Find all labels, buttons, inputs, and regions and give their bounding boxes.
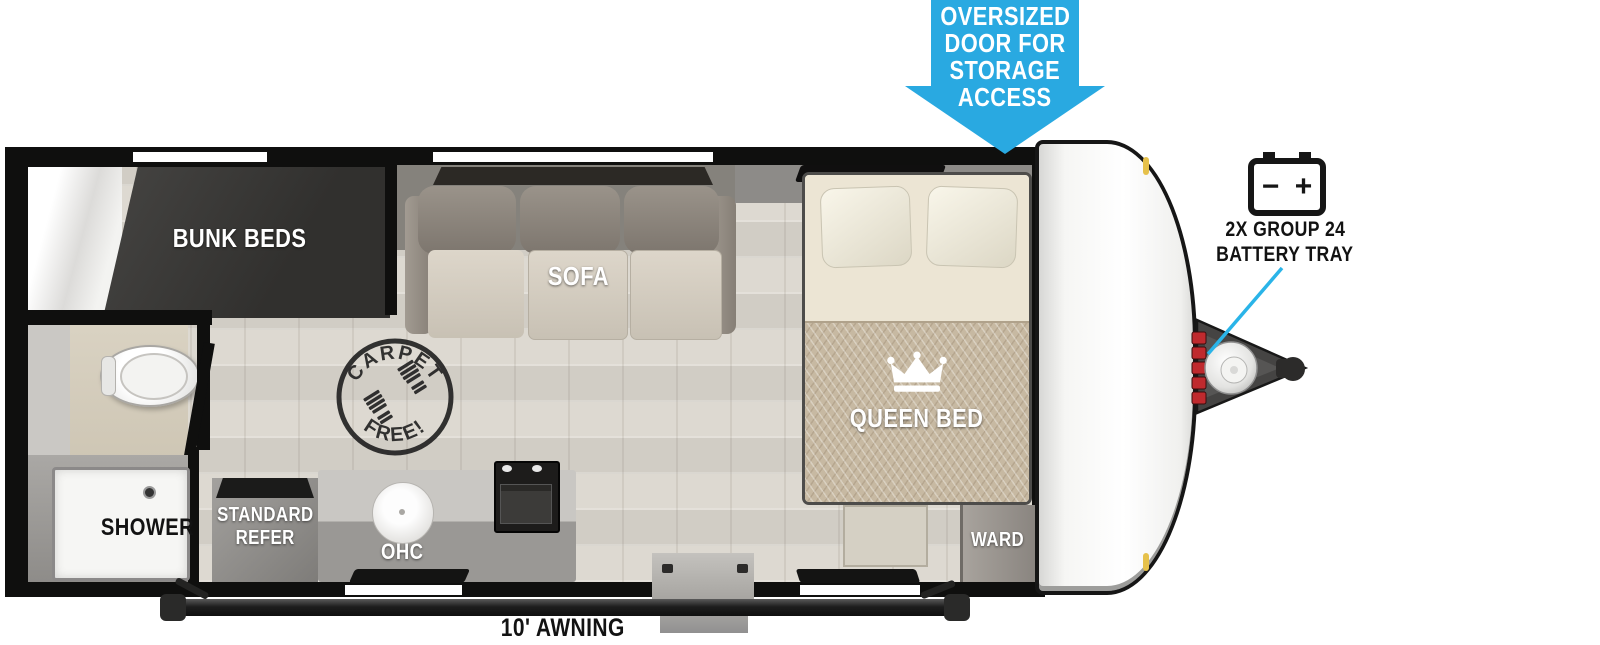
stove-burner: [532, 465, 542, 472]
battery-tray-label: 2X GROUP 24 BATTERY TRAY: [1185, 217, 1385, 267]
queen-bed-label: QUEEN BED: [805, 403, 1029, 434]
hitch-coupler: [1281, 357, 1305, 381]
callout-text-line: STORAGE: [950, 57, 1061, 84]
window-kitchen: [345, 585, 462, 595]
marker-light: [1143, 157, 1149, 175]
bed-storage-step: [843, 505, 928, 567]
marker-light: [1143, 553, 1149, 571]
kitchen-window: [349, 569, 470, 583]
awning-end-cap: [160, 594, 186, 621]
battery-terminal: [1299, 152, 1311, 159]
sofa-ohc-cabinet: [433, 167, 713, 185]
callout-text-line: OVERSIZED: [940, 3, 1070, 30]
toilet-seat: [120, 353, 188, 400]
awning-label: 10' AWNING: [463, 614, 663, 643]
bunk-bathroom-wall: [5, 310, 212, 325]
callout-text-line: ACCESS: [958, 84, 1052, 111]
sink-drain: [399, 509, 405, 515]
queen-bed: QUEEN BED: [802, 172, 1032, 505]
step-foot: [662, 564, 673, 573]
crown-icon: [881, 351, 953, 397]
svg-text:CARPET: CARPET: [343, 341, 447, 385]
sofa-back-cushion: [520, 186, 620, 254]
window-sofa: [433, 152, 713, 162]
sofa-label: SOFA: [498, 261, 658, 292]
bunk-bed-bedding: [28, 167, 122, 310]
battery-terminal: [1263, 152, 1275, 159]
window-bunk: [133, 152, 267, 162]
callout-text-line: DOOR FOR: [944, 30, 1065, 57]
bedroom-window-bottom: [796, 569, 921, 583]
awning-end-cap: [944, 594, 970, 621]
stove-oven-front: [500, 484, 552, 524]
entry-step-upper: [652, 553, 754, 599]
bunk-beds-label: BUNK BEDS: [140, 223, 340, 254]
room-divider-wall: [385, 147, 397, 315]
stove-burner: [502, 465, 512, 472]
kitchen-ohc-label: OHC: [332, 539, 472, 565]
toilet-hinge: [101, 356, 116, 396]
sofa-back-cushion: [624, 186, 719, 254]
floorplan-canvas: BUNK BEDS SHOWER STANDARD REFER OHC OHC: [0, 0, 1600, 645]
window-bedroom: [800, 585, 920, 595]
svg-text:FREE!: FREE!: [360, 415, 430, 446]
tongue-assembly: [1150, 240, 1330, 440]
battery-plus: +: [1295, 172, 1313, 202]
bed-pillow: [820, 185, 913, 268]
bed-pillow: [926, 185, 1019, 268]
battery-icon: − +: [1248, 158, 1326, 216]
refrigerator-top: [216, 478, 314, 498]
battery-minus: −: [1262, 172, 1280, 202]
shower-drain: [143, 486, 156, 499]
battery-pack-icon: [1192, 332, 1206, 404]
sofa-back-cushion: [418, 186, 516, 254]
carpet-free-stamp: CARPET FREE!: [333, 335, 457, 459]
step-foot: [737, 564, 748, 573]
callout-text: OVERSIZED DOOR FOR STORAGE ACCESS: [905, 3, 1105, 111]
